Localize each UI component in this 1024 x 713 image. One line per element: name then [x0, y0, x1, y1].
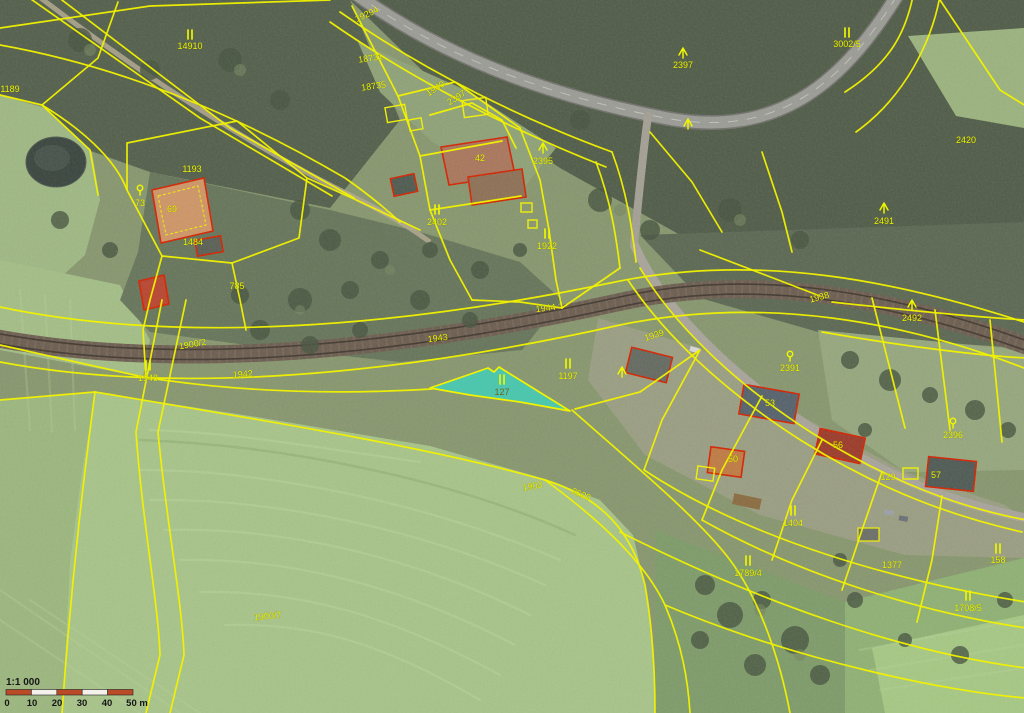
- parcel-number-label: 2391: [780, 363, 800, 373]
- parcel-number-label: 2492: [902, 313, 922, 323]
- parcel-number-label: 2395: [533, 156, 553, 166]
- parcel-number-label: 1484: [183, 237, 203, 247]
- parcel-number-label: 129: [880, 472, 895, 482]
- parcel-number-label: 1189: [0, 84, 19, 94]
- scale-tick-label: 40: [102, 698, 113, 709]
- scale-tick-label: 20: [52, 698, 63, 709]
- scale-segment: [31, 690, 56, 696]
- parcel-number-label: 1404: [783, 518, 803, 528]
- parcel-number-label: 3002/5: [833, 39, 861, 49]
- map-canvas[interactable]: 14910118919294187311873519402397423002/5…: [0, 0, 1024, 713]
- parcel-number-label: 1197: [558, 371, 577, 381]
- parcel-number-label: 1377: [882, 560, 902, 570]
- parcel-number-label: 1948: [138, 373, 158, 383]
- parcel-number-label: 73: [135, 198, 145, 208]
- scale-tick-label: 30: [77, 698, 88, 709]
- scale-tick-label: 0: [4, 698, 9, 709]
- parcel-number-label: 1708/5: [954, 603, 982, 613]
- scale-tick-label: 10: [27, 698, 38, 709]
- parcel-number-label: 1193: [182, 164, 201, 174]
- parcel-number-label: 1922: [537, 241, 557, 251]
- parcel-number-label: 785: [229, 281, 244, 291]
- parcel-number-label: 14910: [177, 41, 202, 51]
- scale-segment: [6, 690, 31, 696]
- parcel-number-label: 1942: [232, 368, 253, 379]
- scale-segment: [108, 690, 133, 696]
- parcel-number-label: 2420: [956, 135, 976, 145]
- scale-segment: [57, 690, 82, 696]
- parcel-number-label: 42: [475, 153, 485, 163]
- parcel-number-label: 50: [728, 454, 738, 464]
- parcel-number-label: 2397: [673, 60, 693, 70]
- parcel-number-label: 127: [494, 387, 509, 397]
- scale-segment: [82, 690, 107, 696]
- scale-tick-label: 50 m: [126, 698, 148, 709]
- parcel-number-label: 69: [167, 204, 177, 214]
- parcel-number-label: 1789/4: [734, 568, 762, 578]
- parcel-number-label: 56: [833, 440, 843, 450]
- parcel-number-label: 53: [765, 398, 775, 408]
- parcel-number-label: 57: [931, 470, 941, 480]
- parcel-number-label: 158: [990, 555, 1005, 565]
- scale-ratio-label: 1:1 000: [6, 677, 40, 688]
- scale-tick-labels: 01020304050 m: [4, 698, 147, 709]
- parcel-number-label: 2396: [943, 430, 963, 440]
- parcel-number-label: 2402: [427, 217, 447, 227]
- photo-grain-overlay: [0, 0, 1024, 713]
- cadastral-map-screenshot: 14910118919294187311873519402397423002/5…: [0, 0, 1024, 713]
- parcel-number-label: 2491: [874, 216, 894, 226]
